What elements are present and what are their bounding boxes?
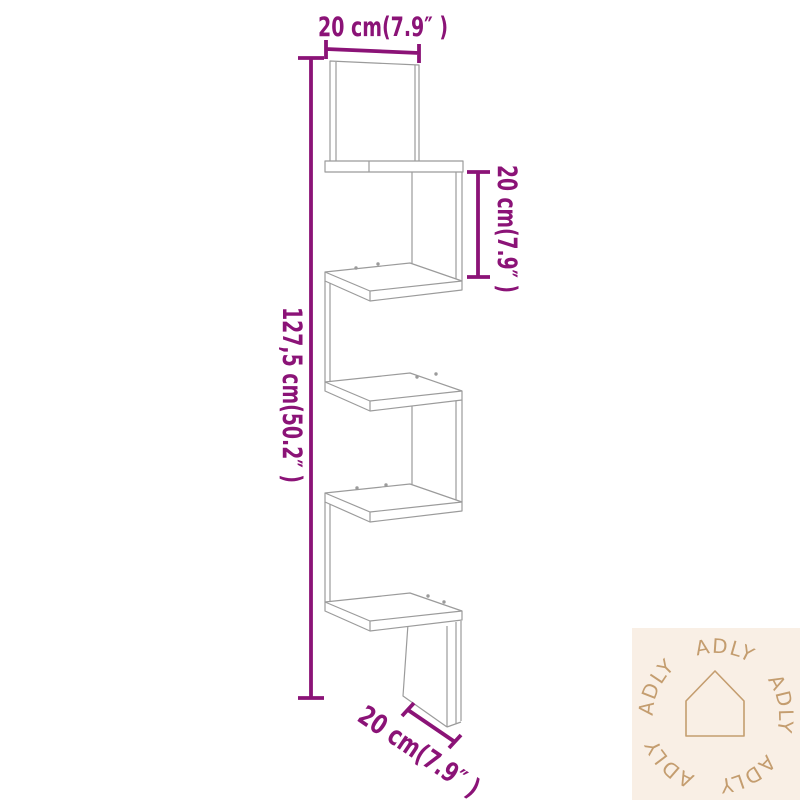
shelf-drawing [325,61,463,727]
shelf-1 [325,161,463,172]
dimension-total-height: 127,5 cm(50.2″ ) [276,58,324,698]
dimension-line-top [326,40,419,63]
dimension-label-left: 127,5 cm(50.2″ ) [276,307,307,483]
corner-shelf-dimension-diagram: 20 cm(7.9″ ) 127,5 cm(50.2″ ) 20 cm(7.9″… [0,0,800,800]
side-panel-left-1 [325,281,330,392]
diagram-canvas: 20 cm(7.9″ ) 127,5 cm(50.2″ ) 20 cm(7.9″… [0,0,800,800]
shelf-3 [325,373,462,411]
dimension-bottom-depth: 20 cm(7.9″ ) [352,700,485,800]
shelf-5 [325,593,462,631]
dimension-shelf-gap: 20 cm(7.9″ ) [467,165,522,293]
dimension-label-top: 20 cm(7.9″ ) [318,12,448,43]
dimension-label-right: 20 cm(7.9″ ) [491,165,522,293]
dimension-top-width: 20 cm(7.9″ ) [318,12,448,63]
shelf-2 [325,263,462,301]
top-back-panel [330,61,419,168]
screw-holes [354,262,445,603]
shelf-4 [325,484,462,522]
side-panel-left-2 [325,502,330,612]
side-panel-right-1 [412,172,462,281]
dimension-line-right [467,172,490,277]
